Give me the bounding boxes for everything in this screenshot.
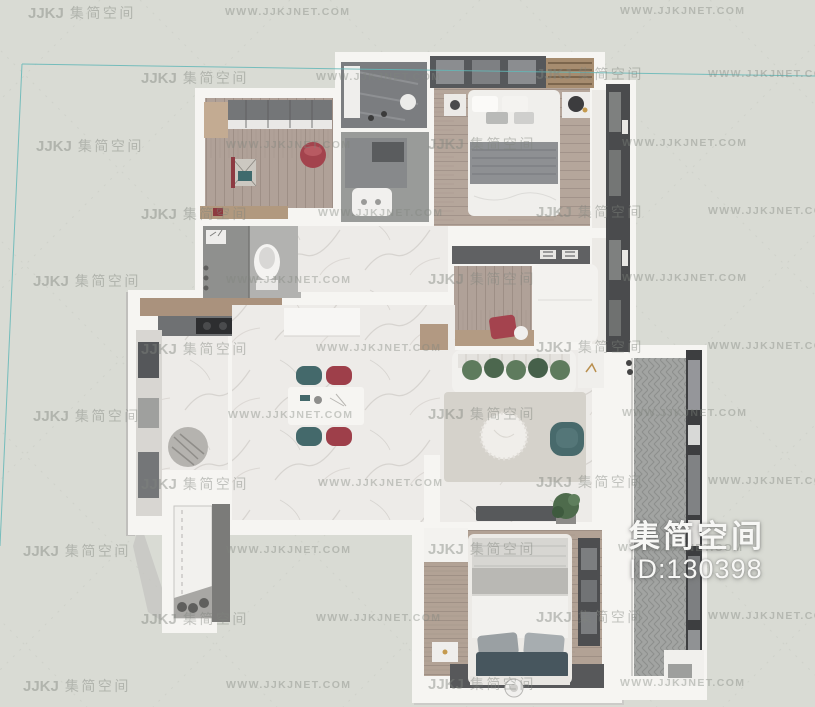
- master-bed: [468, 90, 560, 216]
- living-room: [420, 350, 604, 530]
- bed-2: [468, 534, 572, 685]
- brand-overlay-id: ID:130398: [629, 554, 765, 584]
- stove: [196, 318, 234, 334]
- balcony-window-frame: [686, 350, 702, 684]
- teal-chair: [296, 366, 322, 385]
- middle-room: [452, 246, 598, 346]
- single-bed: [532, 264, 598, 342]
- screenshot-stage: JJKJ集简空间WWW.JJKJNET.COMWWW.JJKJNET.COMJJ…: [0, 0, 815, 707]
- toilet-2: [352, 188, 392, 216]
- red-chair: [326, 366, 352, 385]
- right-balcony: [626, 350, 704, 686]
- brand-overlay: 集简空间 ID:130398: [629, 520, 765, 584]
- sofa: [452, 350, 576, 394]
- brand-overlay-title: 集简空间: [629, 520, 765, 554]
- bottom-bedroom: [424, 528, 604, 697]
- bathroom: [203, 226, 301, 298]
- teal-chair: [296, 427, 322, 446]
- study-desk: [228, 100, 332, 120]
- study-cabinet: [204, 102, 228, 138]
- utility-nook: [174, 504, 230, 622]
- master-bathroom: [341, 132, 429, 222]
- coffee-table: [481, 413, 527, 459]
- study-room: [200, 98, 333, 219]
- floor-plan-render: [0, 0, 815, 707]
- sideboard: [284, 308, 360, 336]
- entry-closet: [341, 62, 427, 128]
- mirror: [400, 94, 416, 110]
- potted-plant: [552, 493, 580, 524]
- side-table: [578, 350, 604, 388]
- dining-table: [288, 387, 364, 425]
- master-bedroom: [430, 56, 606, 228]
- closet-counter: [344, 66, 360, 118]
- red-chair: [326, 427, 352, 446]
- study-chair: [231, 157, 256, 188]
- red-chair: [489, 314, 518, 339]
